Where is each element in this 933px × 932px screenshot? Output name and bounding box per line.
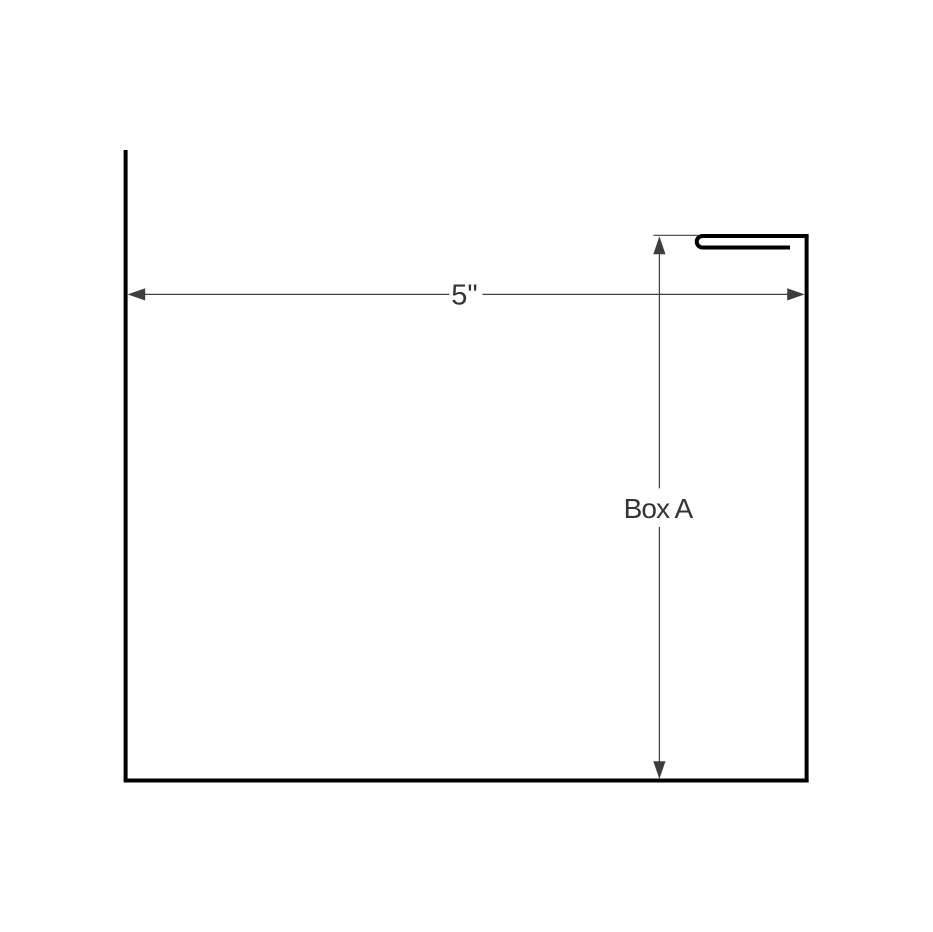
svg-text:Box A: Box A [624,493,694,524]
svg-text:5": 5" [451,280,477,312]
